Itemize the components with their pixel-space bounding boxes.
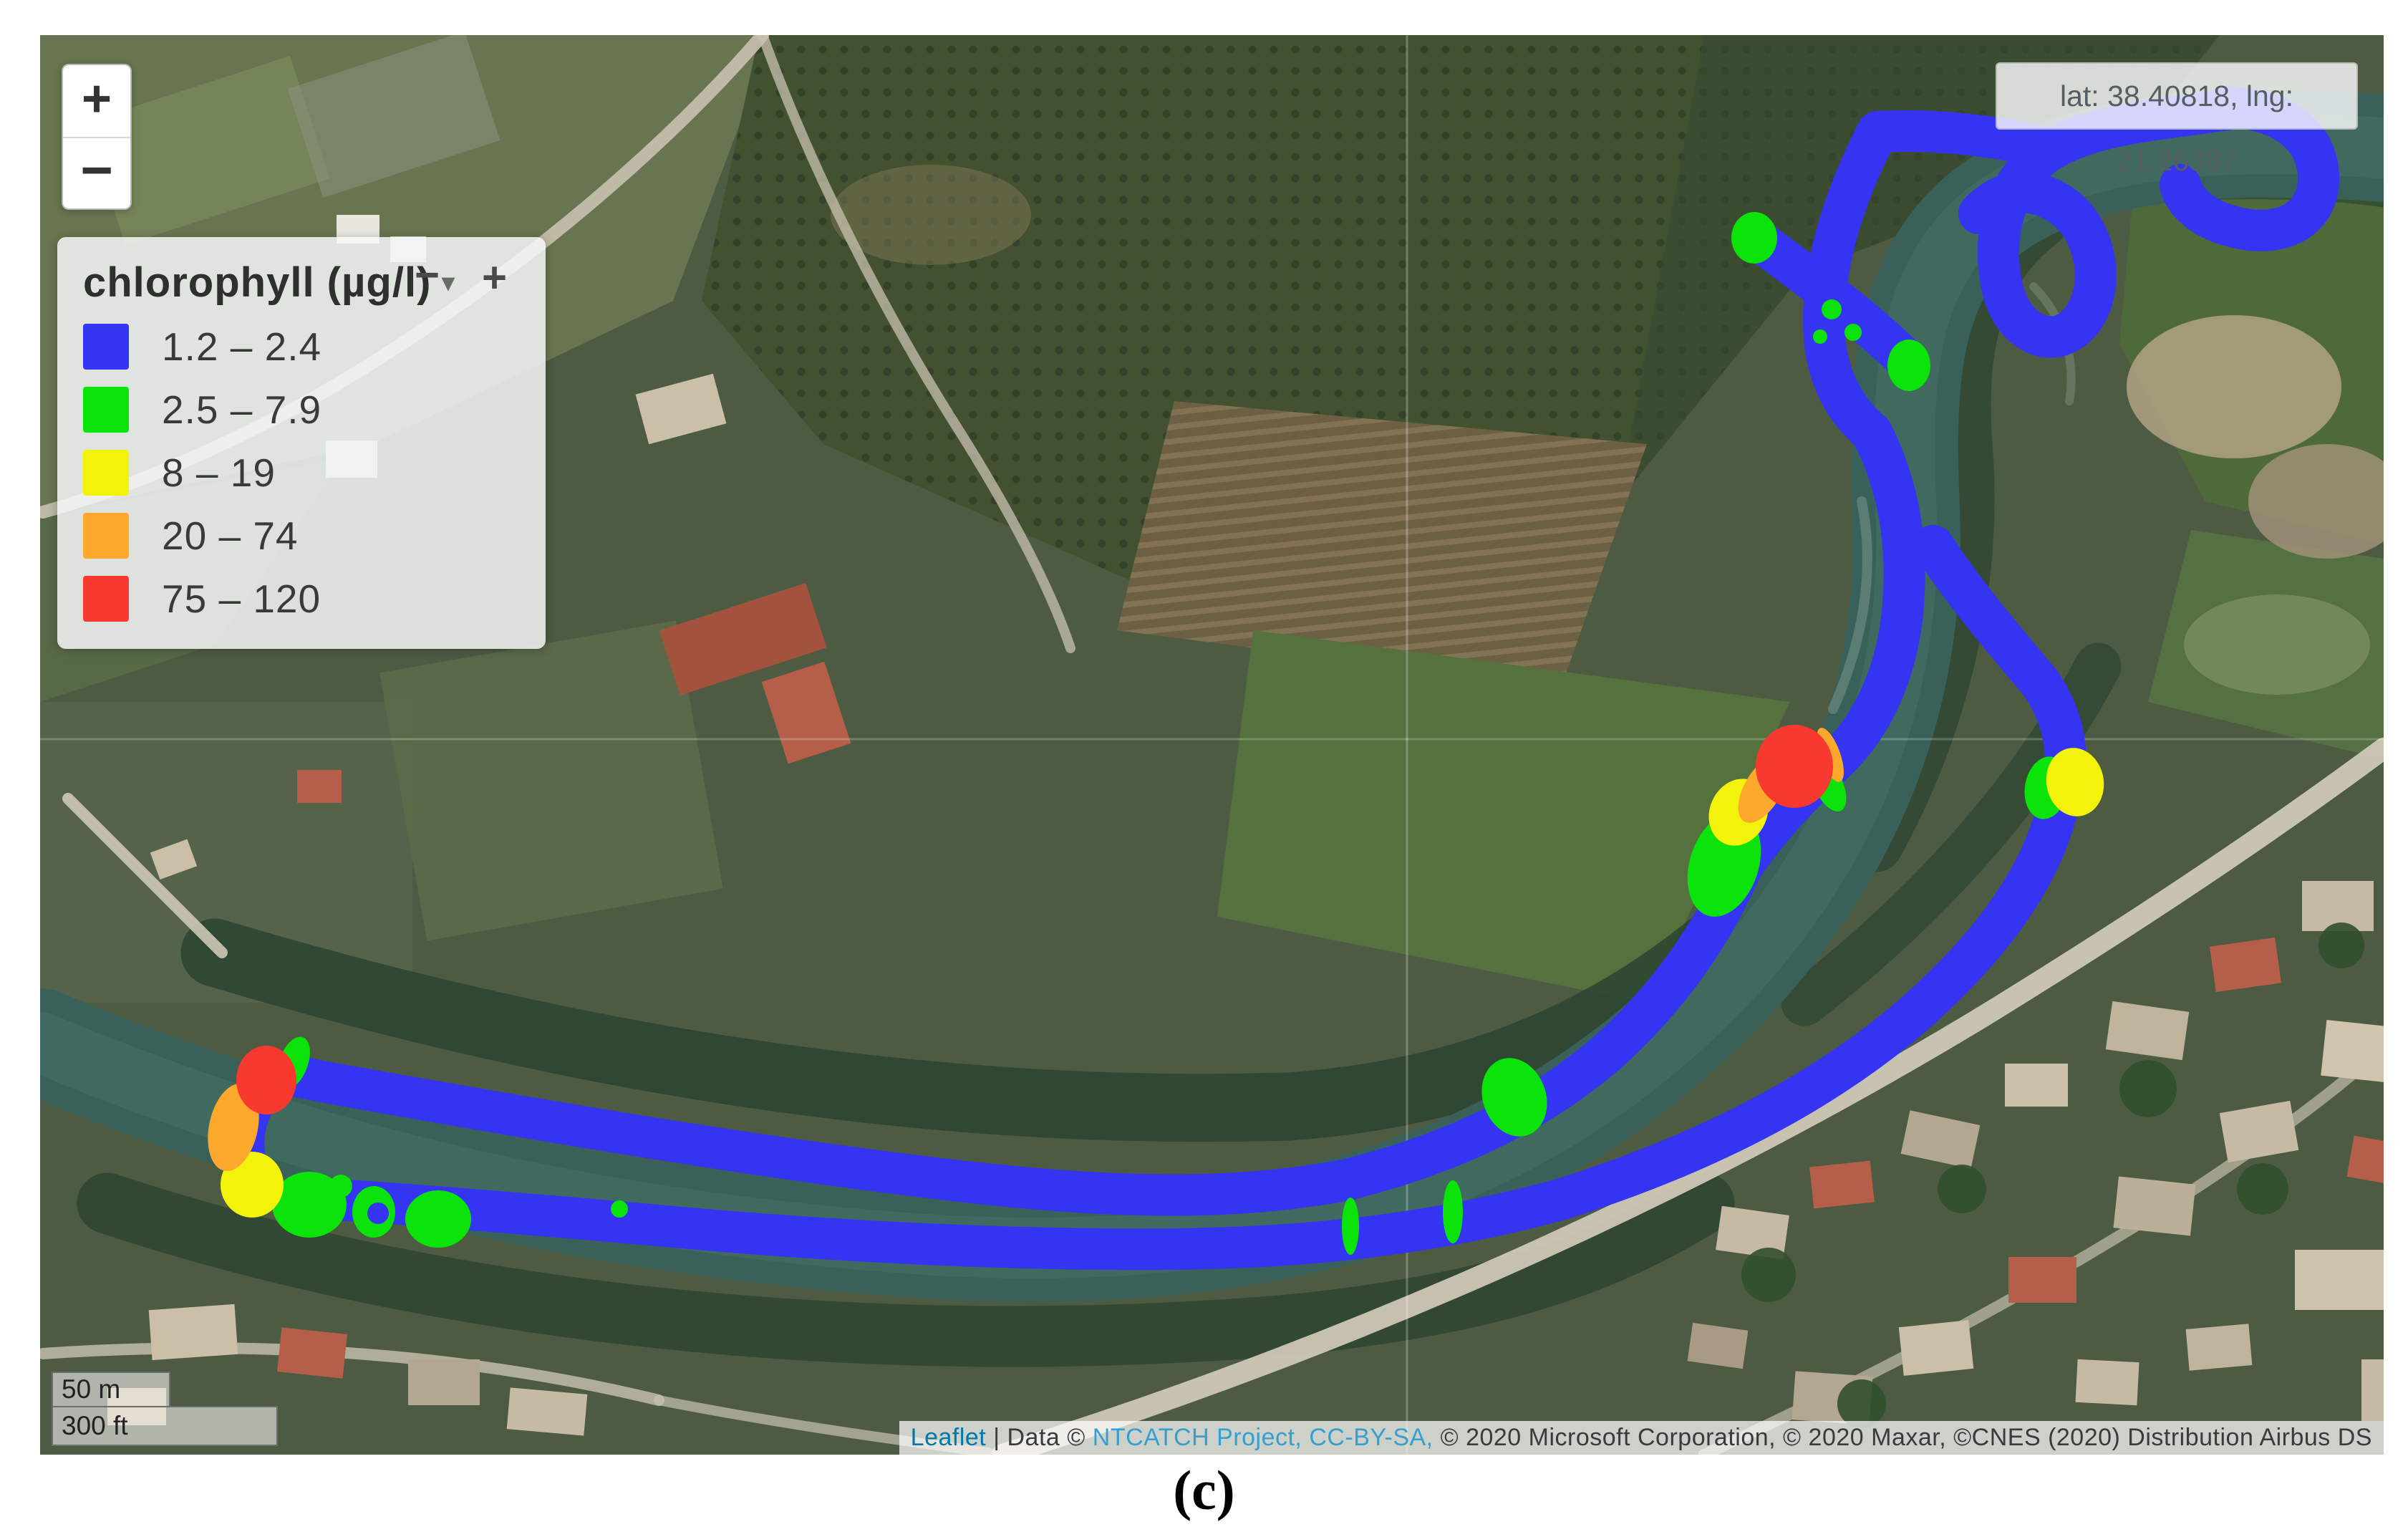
- figure-page: + − chlorophyll (µg/l) ▾ − + 1.2 – 2.42.…: [0, 0, 2408, 1537]
- attribution-text: | Data ©: [986, 1424, 1093, 1451]
- legend-item: 8 – 19: [83, 450, 520, 496]
- zoom-control: + −: [62, 64, 132, 210]
- zoom-in-button[interactable]: +: [63, 65, 130, 137]
- legend-label: 20 – 74: [162, 513, 299, 559]
- figure-caption: (c): [0, 1458, 2408, 1523]
- legend-minimize-button[interactable]: −: [415, 250, 440, 299]
- attribution-text: © 2020 Microsoft Corporation, © 2020 Max…: [1433, 1424, 2372, 1451]
- legend-header: chlorophyll (µg/l) ▾ − +: [83, 259, 520, 307]
- legend-label: 2.5 – 7.9: [162, 387, 321, 433]
- legend-item: 75 – 120: [83, 576, 520, 622]
- chevron-down-icon[interactable]: ▾: [441, 266, 455, 299]
- legend-swatch: [83, 387, 129, 433]
- legend-swatch: [83, 576, 129, 622]
- leaflet-map[interactable]: + − chlorophyll (µg/l) ▾ − + 1.2 – 2.42.…: [40, 35, 2384, 1455]
- legend-maximize-button[interactable]: +: [482, 253, 507, 302]
- legend-label: 8 – 19: [162, 450, 276, 496]
- leaflet-link[interactable]: Leaflet: [911, 1424, 987, 1451]
- scale-metric: 50 m: [52, 1372, 170, 1407]
- legend-swatch: [83, 513, 129, 559]
- legend-item: 2.5 – 7.9: [83, 387, 520, 433]
- legend-swatch: [83, 450, 129, 496]
- legend-swatch: [83, 324, 129, 370]
- legend-title: chlorophyll (µg/l): [83, 259, 431, 307]
- legend-label: 75 – 120: [162, 576, 321, 622]
- legend-items: 1.2 – 2.42.5 – 7.98 – 1920 – 7475 – 120: [83, 324, 520, 622]
- legend-panel: chlorophyll (µg/l) ▾ − + 1.2 – 2.42.5 – …: [57, 237, 546, 649]
- legend-label: 1.2 – 2.4: [162, 324, 321, 370]
- attribution-bar: Leaflet | Data © NTCATCH Project, CC-BY-…: [899, 1421, 2384, 1455]
- zoom-out-button[interactable]: −: [63, 137, 130, 208]
- scale-imperial: 300 ft: [52, 1406, 278, 1446]
- coordinates-display: lat: 38.40818, lng: 21.26387: [1996, 62, 2358, 130]
- legend-item: 20 – 74: [83, 513, 520, 559]
- legend-item: 1.2 – 2.4: [83, 324, 520, 370]
- scale-control: 50 m 300 ft: [52, 1372, 278, 1446]
- ntcatch-link[interactable]: NTCATCH Project, CC-BY-SA,: [1093, 1424, 1433, 1451]
